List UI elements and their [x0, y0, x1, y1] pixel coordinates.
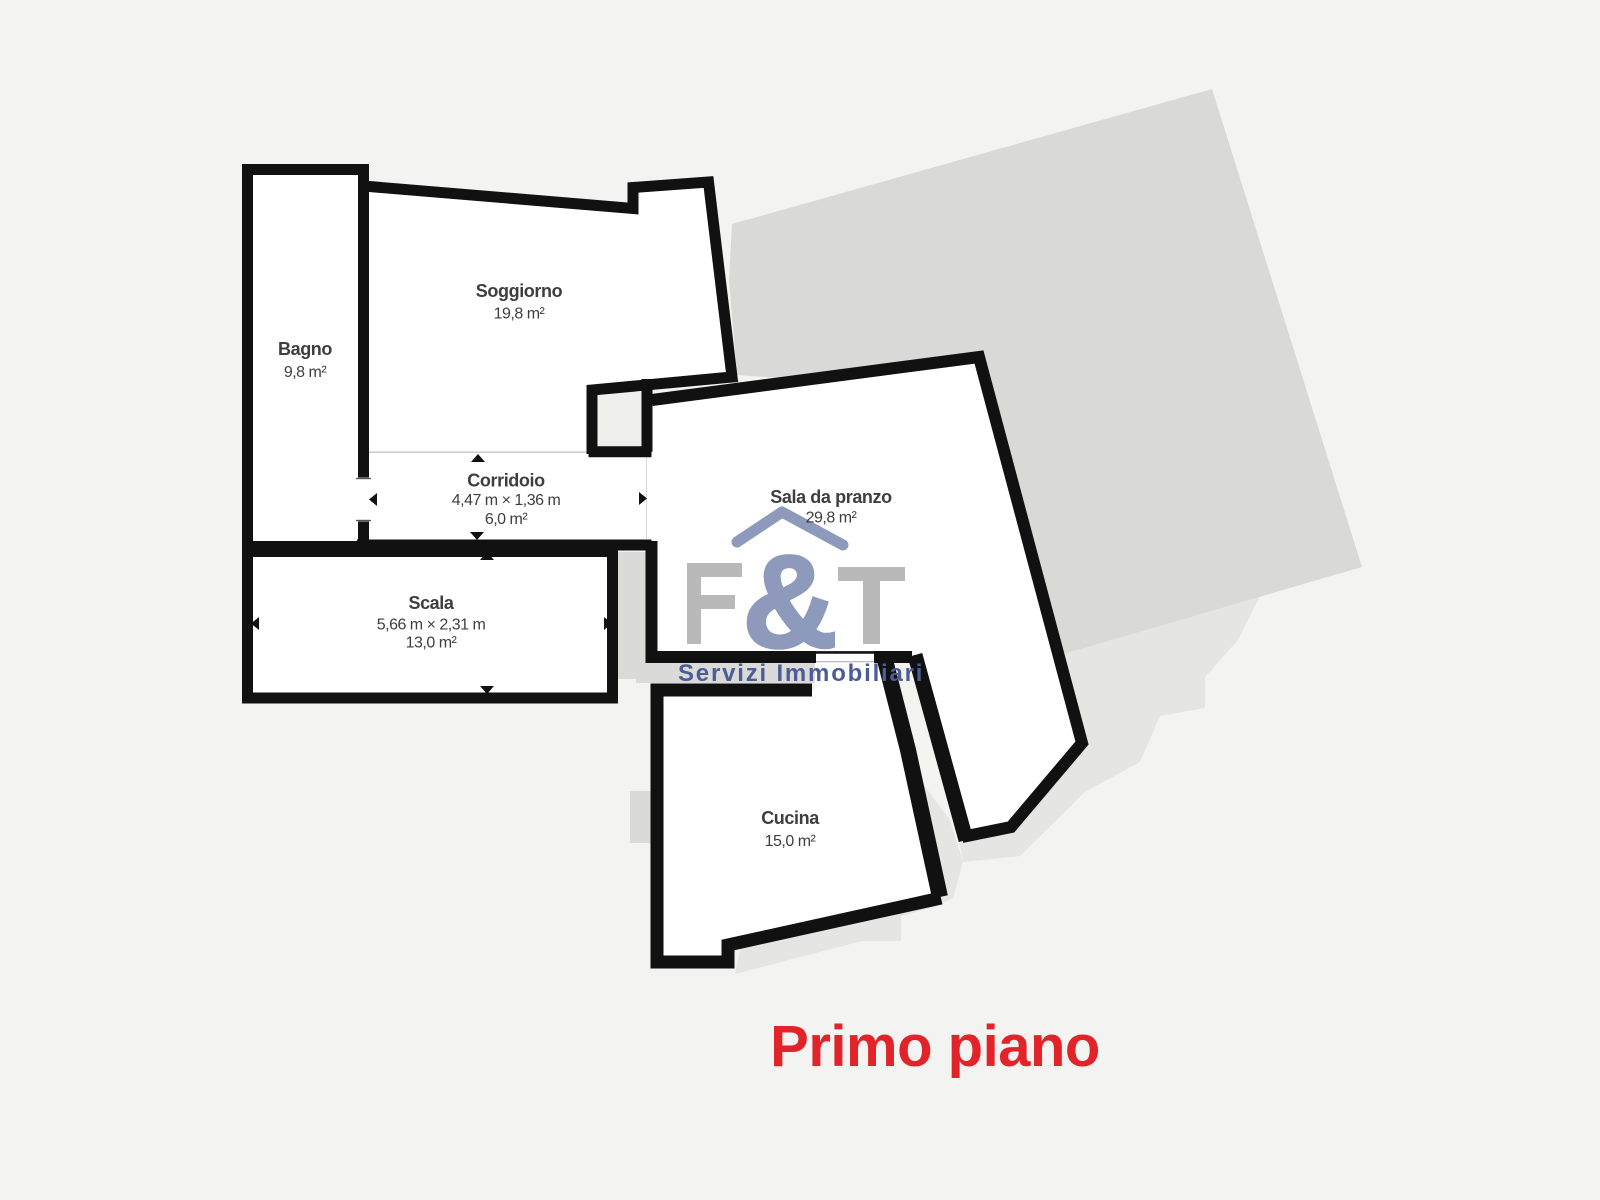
svg-text:15,0 m²: 15,0 m²: [765, 833, 817, 850]
svg-text:Bagno: Bagno: [278, 339, 332, 359]
svg-text:&: &: [742, 528, 837, 675]
svg-text:Corridoio: Corridoio: [467, 471, 545, 491]
svg-text:19,8 m²: 19,8 m²: [494, 306, 546, 323]
svg-text:13,0 m²: 13,0 m²: [406, 635, 458, 652]
svg-text:5,66 m × 2,31 m: 5,66 m × 2,31 m: [377, 617, 486, 634]
svg-text:29,8 m²: 29,8 m²: [806, 510, 858, 527]
svg-text:Soggiorno: Soggiorno: [476, 281, 563, 301]
svg-text:9,8 m²: 9,8 m²: [284, 364, 328, 381]
svg-text:Servizi Immobiliari: Servizi Immobiliari: [678, 660, 924, 687]
svg-text:Cucina: Cucina: [761, 808, 820, 828]
svg-text:Primo piano: Primo piano: [770, 1014, 1100, 1079]
svg-text:6,0 m²: 6,0 m²: [485, 511, 529, 528]
svg-text:Sala da pranzo: Sala da pranzo: [770, 487, 892, 507]
svg-text:Scala: Scala: [408, 593, 454, 613]
svg-text:4,47 m × 1,36 m: 4,47 m × 1,36 m: [452, 492, 561, 509]
